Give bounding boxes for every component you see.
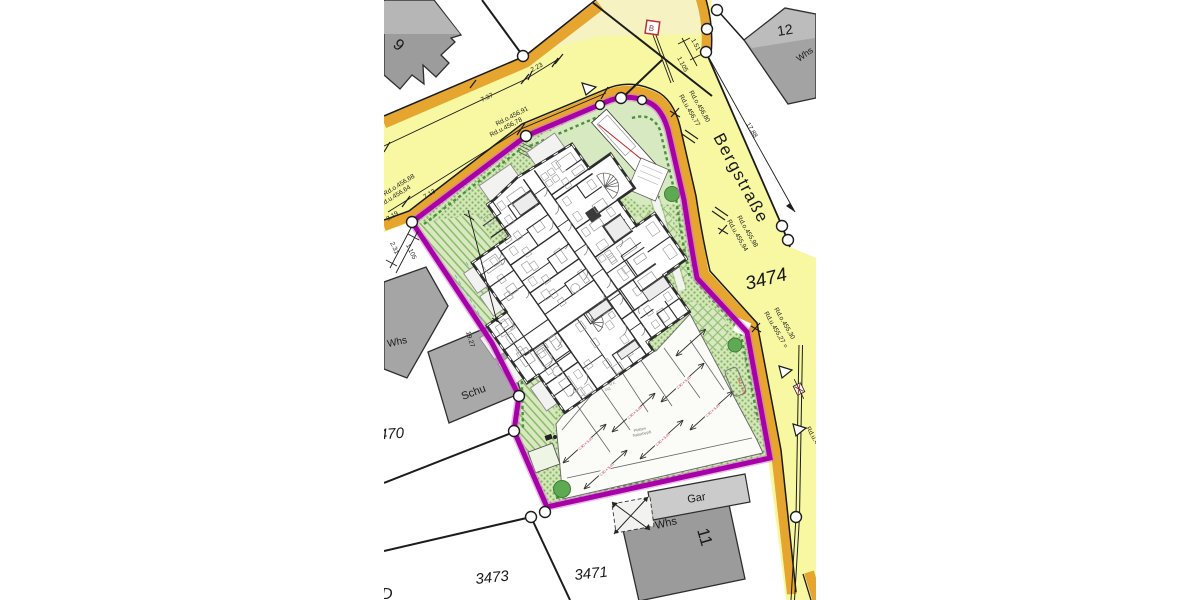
svg-text:2.31: 2.31 (388, 241, 400, 256)
svg-text:12: 12 (776, 21, 794, 39)
svg-text:1.105: 1.105 (404, 243, 417, 261)
svg-text:3471: 3471 (574, 564, 609, 584)
svg-text:3473: 3473 (475, 568, 511, 588)
svg-text:D: D (384, 586, 393, 600)
svg-text:3470: 3470 (384, 425, 405, 444)
